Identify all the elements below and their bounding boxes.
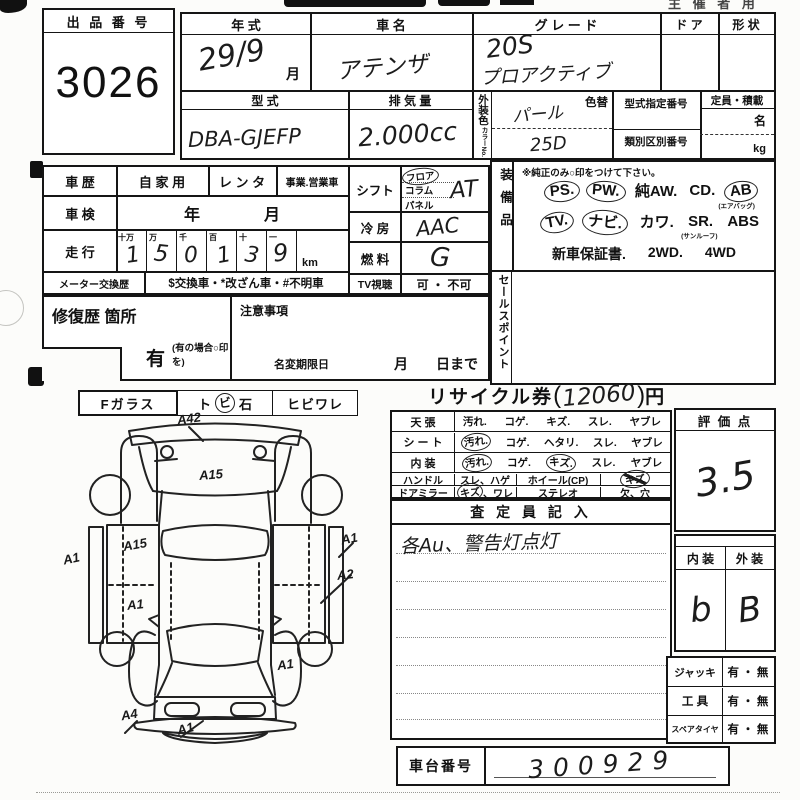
equip-aw: 純AW. bbox=[632, 180, 681, 203]
equip-abs: ABS bbox=[724, 213, 762, 232]
equip-leather: カワ. bbox=[637, 211, 677, 234]
car-name-cell: 車 名 アテンザ bbox=[310, 14, 472, 90]
sales-point-label: セールスポイント bbox=[495, 274, 511, 370]
jack-label: ジャッキ bbox=[674, 665, 715, 680]
capacity-people-unit: 名 bbox=[754, 112, 766, 129]
name-change-label: 名変期限日 bbox=[274, 356, 329, 372]
color-no-label: カラーNo. bbox=[478, 127, 488, 157]
displacement-value: 2.000cc bbox=[357, 117, 458, 153]
ceiling-opt: キズ. bbox=[546, 414, 570, 429]
seat-opt: スレ. bbox=[593, 435, 617, 450]
score-label: 評 価 点 bbox=[698, 411, 752, 430]
inspection-value: 年 月 bbox=[184, 201, 280, 225]
caution-box: 注意事項 名変期限日 月 日まで bbox=[230, 295, 490, 381]
ceiling-opt: ヤブレ bbox=[630, 414, 662, 429]
designation-label: 型式指定番号 bbox=[625, 96, 688, 111]
mirror-opt: 、ワレ bbox=[483, 485, 513, 500]
mirror-row: ドアミラー キズ、ワレ ステレオ 欠、穴 bbox=[392, 487, 670, 499]
tv-row: TV視聴 可 ・ 不可 bbox=[350, 275, 488, 293]
color-change-label: 色替 bbox=[585, 94, 608, 110]
recycle-value: 12060 bbox=[560, 380, 638, 413]
equip-2wd: 2WD. bbox=[648, 244, 683, 264]
tools-row: 工 具 有 ・ 無 bbox=[668, 688, 774, 715]
color-label: 外装色 bbox=[476, 94, 491, 126]
sales-point-area bbox=[512, 272, 774, 383]
tools-value: 有 ・ 無 bbox=[728, 693, 769, 709]
odo-digit-4: 1 bbox=[215, 242, 233, 269]
ceiling-opt: スレ. bbox=[588, 414, 612, 429]
equip-cd: CD. bbox=[686, 182, 718, 201]
capacity-label: 定員・積載 bbox=[711, 93, 764, 108]
ceiling-opt: 汚れ. bbox=[463, 414, 487, 429]
displacement-label: 排 気 量 bbox=[389, 92, 432, 109]
seat-opt-circled: 汚れ. bbox=[460, 431, 492, 452]
bottom-dotted-edge bbox=[36, 792, 780, 793]
damage-mark-a1-left-lower: A1 bbox=[126, 596, 144, 613]
spare-tire-value: 有 ・ 無 bbox=[728, 721, 769, 737]
seat-opt: ヘタリ. bbox=[544, 435, 578, 450]
scan-smudge-circle bbox=[0, 290, 24, 326]
door-label: ド ア bbox=[675, 16, 702, 33]
meter-history-value: $交換車・*改ざん車・#不明車 bbox=[168, 275, 323, 291]
damage-mark-a1-right: A1 bbox=[340, 530, 359, 548]
shape-label: 形 状 bbox=[732, 16, 759, 33]
inspection-label: 車 検 bbox=[65, 204, 95, 223]
controls-table: シフト フロア コラム パネル AT 冷 房 AAC 燃 料 G TV視聴 可 … bbox=[348, 165, 490, 295]
odo-digit-3: 0 bbox=[183, 243, 199, 269]
history-rental: レ ン タ bbox=[219, 172, 265, 191]
stereo-value: 欠、穴 bbox=[620, 485, 650, 500]
repair-history-label: 修復歴 箇所 bbox=[52, 303, 136, 327]
tv-value: 可 ・ 不可 bbox=[417, 276, 472, 293]
jack-value: 有 ・ 無 bbox=[728, 664, 769, 680]
fuel-row: 燃 料 G bbox=[350, 243, 488, 273]
condition-grid: 天 張 汚れ.コゲ.キズ.スレ.ヤブレ シ ー ト 汚れ.コゲ.ヘタリ.スレ.ヤ… bbox=[390, 410, 672, 499]
shape-cell: 形 状 bbox=[718, 14, 774, 90]
ceiling-opt: コゲ. bbox=[505, 414, 529, 429]
equipment-row-2: TV. ナビ. カワ. SR. (サンルーフ) ABS bbox=[514, 208, 774, 236]
scan-noise bbox=[500, 0, 534, 5]
exterior-grade-label: 外 装 bbox=[736, 550, 763, 567]
equip-warranty: 新車保証書. bbox=[552, 244, 626, 264]
equip-sr-note: (サンルーフ) bbox=[681, 230, 717, 240]
damage-mark-a2-right: A2 bbox=[336, 566, 354, 583]
interior-opt: ヤブレ bbox=[631, 455, 663, 470]
score-box: 評 価 点 3.5 bbox=[674, 408, 776, 532]
equipment-row-3: 新車保証書. 2WD. 4WD bbox=[514, 244, 774, 264]
chassis-label: 車台番号 bbox=[409, 756, 473, 776]
shift-value: AT bbox=[449, 176, 479, 204]
interior-grade-value: b bbox=[688, 589, 714, 631]
history-row: 車 歴 自 家 用 レ ン タ 事業.営業車 bbox=[44, 167, 348, 195]
year-label: 年 式 bbox=[231, 15, 261, 34]
ac-value: AAC bbox=[415, 213, 461, 241]
ceiling-row: 天 張 汚れ.コゲ.キズ.スレ.ヤブレ bbox=[392, 412, 670, 431]
sales-point-box: セールスポイント bbox=[490, 270, 776, 385]
assessor-box: 査 定 員 記 入 各Au、警告灯点灯 bbox=[390, 499, 672, 740]
ac-row: 冷 房 AAC bbox=[350, 213, 488, 241]
capacity-kg-unit: kg bbox=[753, 143, 766, 155]
month-label: 月 bbox=[286, 64, 300, 84]
odo-digit-1: 1 bbox=[124, 242, 141, 269]
seat-label: シ ー ト bbox=[403, 434, 442, 450]
odometer-label: 走 行 bbox=[65, 242, 95, 261]
auction-number-value-area: 3026 bbox=[44, 33, 173, 133]
door-cell: ド ア bbox=[660, 14, 718, 90]
model-cell: 型 式 DBA-GJEFP bbox=[182, 92, 348, 158]
color-no-value: 25D bbox=[529, 133, 567, 157]
model-value: DBA-GJEFP bbox=[188, 124, 302, 152]
ceiling-label: 天 張 bbox=[410, 414, 435, 430]
grade-cell: グ レ ー ド 20S プロアクティブ bbox=[472, 14, 660, 90]
history-table: 車 歴 自 家 用 レ ン タ 事業.営業車 車 検 年 月 走 行 十万1 万… bbox=[42, 165, 350, 295]
interior-opt: スレ. bbox=[592, 455, 616, 470]
score-value: 3.5 bbox=[691, 452, 758, 506]
equip-pw: PW. bbox=[586, 179, 627, 203]
designation-cell: 型式指定番号 類別区別番号 bbox=[612, 92, 700, 158]
history-label: 車 歴 bbox=[65, 172, 95, 191]
grade-value-2: プロアクティブ bbox=[479, 57, 611, 91]
damage-mark-a4-front: A4 bbox=[120, 706, 139, 724]
equip-navi: ナビ. bbox=[581, 208, 629, 237]
history-private: 自 家 用 bbox=[139, 172, 185, 191]
capacity-cell: 定員・積載 名 kg bbox=[700, 92, 774, 158]
assessor-header: 査 定 員 記 入 bbox=[470, 502, 592, 522]
vehicle-table: 年 式 29/9 月 車 名 アテンザ グ レ ー ド 20S プロアクティブ … bbox=[180, 12, 776, 160]
interior-opt-circled: キズ. bbox=[546, 452, 577, 473]
odo-digit-6: 9 bbox=[272, 238, 290, 267]
damage-mark-a1-front-right: A1 bbox=[276, 656, 295, 673]
odo-col-100k: 十万 bbox=[118, 232, 134, 243]
recycle-paren-close: ) bbox=[637, 382, 645, 410]
top-right-note: 主 催 者 用 bbox=[668, 0, 759, 10]
tv-label: TV視聴 bbox=[358, 277, 392, 292]
equip-ps: PS. bbox=[543, 179, 581, 204]
chassis-value: 300929 bbox=[527, 745, 678, 784]
auction-number-label: 出 品 番 号 bbox=[67, 12, 151, 31]
exterior-grade-value: B bbox=[735, 589, 764, 632]
seat-row: シ ー ト 汚れ.コゲ.ヘタリ.スレ.ヤブレ bbox=[392, 433, 670, 452]
interior-grade-label: 内 装 bbox=[687, 550, 714, 567]
year-cell: 年 式 29/9 月 bbox=[182, 14, 310, 90]
mirror-label: ドアミラー bbox=[398, 485, 448, 500]
recycle-yen: 円 bbox=[645, 382, 664, 409]
recycle-ticket-line: リサイクル券 ( 12060 ) 円 bbox=[428, 382, 664, 410]
damage-mark-a15-hood: A15 bbox=[198, 466, 223, 483]
chassis-box: 車台番号 300929 bbox=[396, 746, 730, 786]
odo-digit-5: 3 bbox=[243, 242, 260, 269]
color-value: パール bbox=[511, 98, 564, 127]
class-label: 類別区別番号 bbox=[625, 134, 688, 149]
displacement-cell: 排 気 量 2.000cc bbox=[348, 92, 472, 158]
odometer-row: 走 行 十万1 万5 千0 百1 十3 一9 km bbox=[44, 231, 348, 271]
grade-value-1: 20S bbox=[484, 29, 535, 64]
repair-yes-note: (有の場合○印を) bbox=[172, 340, 230, 368]
interior-opt-circled: 汚れ. bbox=[461, 452, 493, 473]
recycle-label: リサイクル券 bbox=[428, 382, 553, 409]
odometer-unit: km bbox=[302, 257, 318, 269]
ac-label: 冷 房 bbox=[361, 218, 389, 237]
meter-row: メーター交換歴 $交換車・*改ざん車・#不明車 bbox=[44, 273, 348, 293]
history-commercial: 事業.営業車 bbox=[286, 174, 339, 189]
scan-noise bbox=[438, 0, 490, 6]
scan-noise bbox=[284, 0, 426, 7]
car-name-value: アテンザ bbox=[335, 44, 430, 86]
odo-digit-2: 5 bbox=[153, 240, 170, 267]
equipment-label: 装備品 bbox=[496, 168, 515, 236]
interior-row: 内 装 汚れ.コゲ.キズ.スレ.ヤブレ bbox=[392, 453, 670, 472]
color-cell: 外装色 カラーNo. 色替 パール 25D bbox=[472, 92, 612, 158]
shift-row: シフト フロア コラム パネル AT bbox=[350, 167, 488, 211]
tools-label: 工 具 bbox=[682, 693, 708, 709]
scan-noise bbox=[0, 0, 27, 13]
shift-column-option: コラム bbox=[405, 186, 433, 197]
caution-label: 注意事項 bbox=[240, 302, 288, 319]
stereo-label: ステレオ bbox=[538, 485, 578, 500]
auction-number-header: 出 品 番 号 bbox=[44, 10, 173, 33]
top-right-note-clip: 主 催 者 用 bbox=[668, 0, 788, 10]
model-label: 型 式 bbox=[251, 92, 278, 109]
repair-notch bbox=[42, 347, 122, 381]
accessories-box: ジャッキ 有 ・ 無 工 具 有 ・ 無 スペアタイヤ 有 ・ 無 bbox=[666, 656, 776, 744]
car-diagram: A42 A15 A15 A1 A1 A1 A2 A1 A4 A1 bbox=[55, 403, 377, 775]
year-value: 29/9 bbox=[195, 32, 267, 78]
equip-4wd: 4WD bbox=[705, 244, 736, 264]
equip-tv: TV. bbox=[538, 209, 575, 236]
auction-number-value: 3026 bbox=[56, 58, 162, 108]
car-diagram-drawing bbox=[55, 403, 377, 775]
spare-tire-row: スペアタイヤ 有 ・ 無 bbox=[668, 716, 774, 742]
equipment-row-1: PS. PW. 純AW. CD. AB (エアバッグ) bbox=[514, 177, 774, 205]
fuel-label: 燃 料 bbox=[361, 249, 389, 268]
shift-label: シフト bbox=[356, 180, 394, 199]
name-change-until: 月 日まで bbox=[394, 354, 478, 374]
interior-opt: コゲ. bbox=[507, 455, 531, 470]
meter-history-label: メーター交換歴 bbox=[59, 276, 129, 291]
auction-number-box: 出 品 番 号 3026 bbox=[42, 8, 175, 155]
equipment-box: 装備品 ※純正のみ○印をつけて下さい。 PS. PW. 純AW. CD. AB … bbox=[490, 160, 776, 272]
repair-yes-label: 有 bbox=[146, 344, 165, 371]
odo-col-1k: 千 bbox=[179, 232, 187, 243]
odo-col-100: 百 bbox=[209, 232, 217, 243]
fuel-value: G bbox=[429, 242, 451, 273]
grade-label: グ レ ー ド bbox=[535, 15, 598, 34]
grade-box: 内 装 外 装 b B bbox=[674, 534, 776, 652]
car-name-label: 車 名 bbox=[376, 15, 406, 34]
repair-history-box: 修復歴 箇所 有 (有の場合○印を) bbox=[42, 295, 232, 381]
spare-tire-label: スペアタイヤ bbox=[671, 724, 718, 735]
inspection-row: 車 検 年 月 bbox=[44, 197, 348, 229]
interior-label: 内 装 bbox=[410, 455, 435, 471]
jack-row: ジャッキ 有 ・ 無 bbox=[668, 658, 774, 686]
seat-opt: ヤブレ bbox=[631, 435, 663, 450]
handle-row: ハンドル スレ、ハゲ ホイール(CP) キズ bbox=[392, 474, 670, 486]
auction-sheet: 主 催 者 用 出 品 番 号 3026 年 式 29/9 月 車 名 アテンザ bbox=[0, 0, 800, 800]
seat-opt: コゲ. bbox=[506, 435, 530, 450]
